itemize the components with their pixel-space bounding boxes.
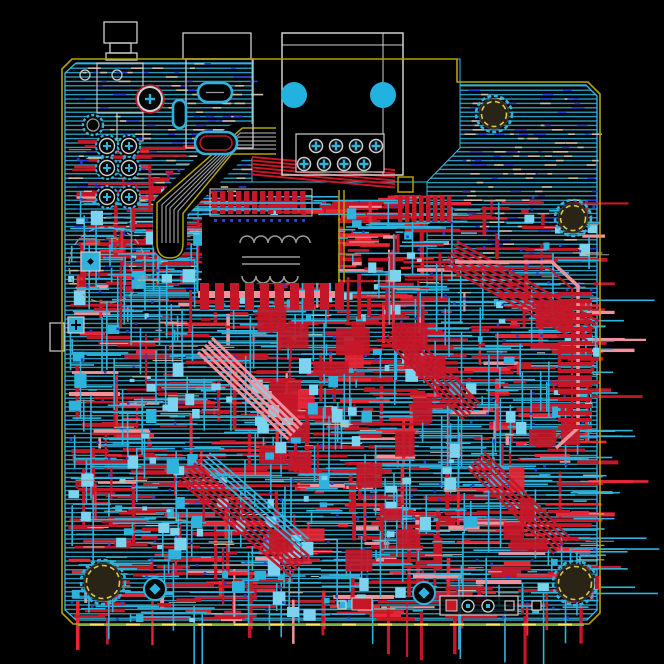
large-round-pad (370, 82, 396, 108)
large-round-pad (281, 82, 307, 108)
pcb-canvas (0, 0, 664, 664)
pcb-layout-view (0, 0, 664, 664)
